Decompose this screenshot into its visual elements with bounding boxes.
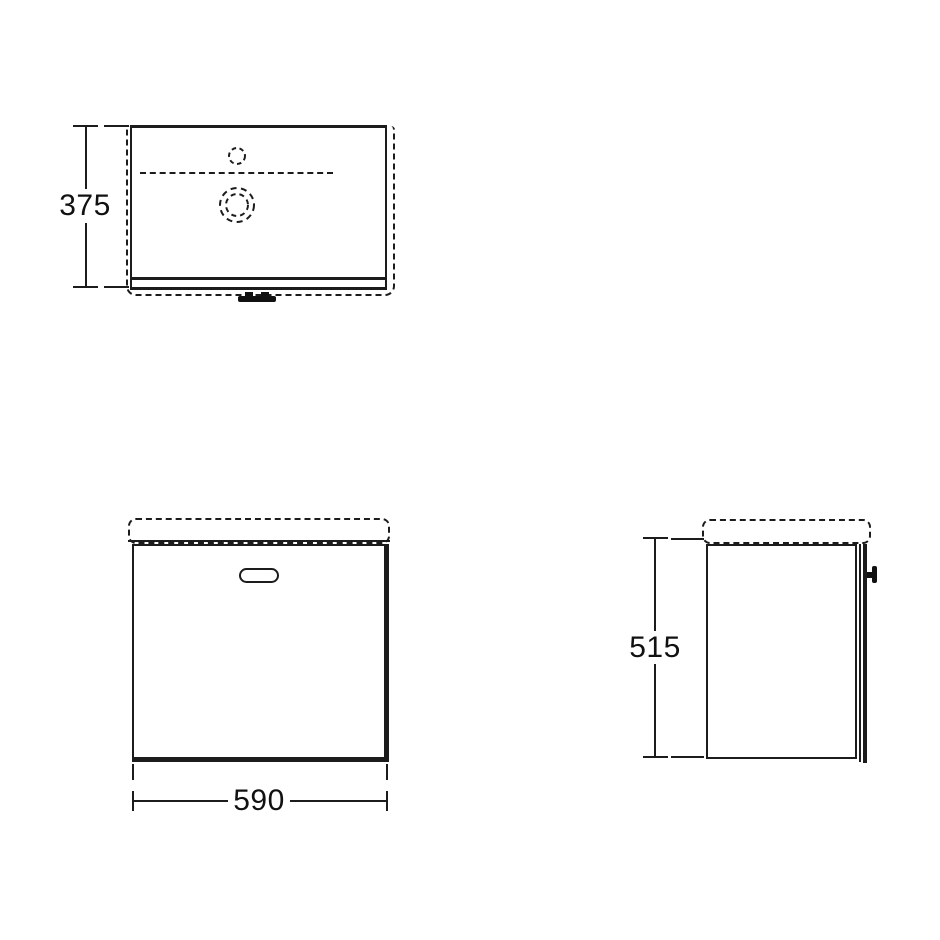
dim-515-label: 515 (625, 631, 685, 664)
dim-515-tick-bottom (643, 756, 668, 758)
side-door-inner-line (859, 544, 861, 762)
front-basin-bottom-edge (128, 540, 390, 542)
front-handle (239, 568, 279, 583)
side-basin-dashed-outline (702, 519, 871, 544)
drain-hole-inner-icon (226, 194, 248, 216)
side-knob-cap (872, 566, 877, 583)
dim-590-label: 590 (228, 784, 290, 817)
dim-515-ext-bottom (671, 756, 704, 758)
dim-590-ext-right (386, 764, 388, 780)
tap-hole-icon (229, 148, 245, 164)
technical-drawing-canvas: 375 590 (0, 0, 940, 940)
dim-515-ext-top (671, 538, 704, 540)
plan-holes-overlay (0, 0, 940, 940)
dim-590-ext-left (132, 764, 134, 780)
side-cabinet-body (706, 544, 857, 759)
